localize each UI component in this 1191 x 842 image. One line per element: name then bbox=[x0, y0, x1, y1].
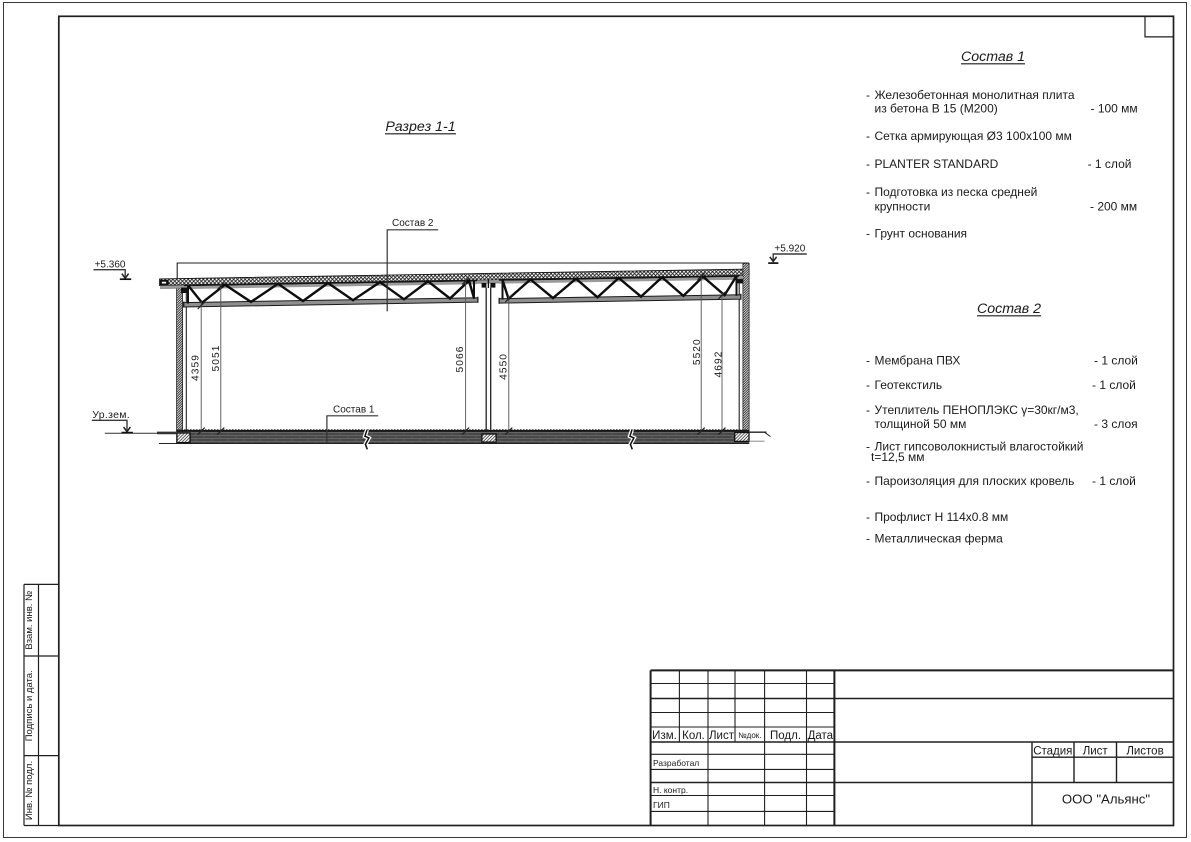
svg-text:-: - bbox=[866, 378, 870, 392]
svg-text:Н. контр.: Н. контр. bbox=[653, 785, 688, 795]
svg-text:- 1 слой: - 1 слой bbox=[1092, 474, 1136, 488]
svg-text:- 100 мм: - 100 мм bbox=[1091, 101, 1138, 115]
svg-text:Разрез 1-1: Разрез 1-1 bbox=[385, 119, 455, 135]
svg-text:Утеплитель ПЕНОПЛЭКС γ=30кг/м3: Утеплитель ПЕНОПЛЭКС γ=30кг/м3, bbox=[875, 403, 1079, 417]
svg-text:Состав 1: Состав 1 bbox=[961, 49, 1025, 65]
svg-text:Взам. инв. №: Взам. инв. № bbox=[24, 591, 35, 650]
svg-text:-: - bbox=[866, 474, 870, 488]
svg-text:Пароизоляция для плоских крове: Пароизоляция для плоских кровель bbox=[875, 474, 1075, 488]
svg-text:Лист: Лист bbox=[1083, 746, 1109, 758]
svg-text:Состав 1: Состав 1 bbox=[333, 404, 375, 415]
svg-text:Состав 2: Состав 2 bbox=[392, 218, 434, 229]
svg-text:Сетка армирующая Ø3 100х100 мм: Сетка армирующая Ø3 100х100 мм bbox=[875, 129, 1072, 143]
svg-text:Подл.: Подл. bbox=[770, 730, 801, 742]
svg-text:-: - bbox=[866, 403, 870, 417]
svg-text:из бетона В 15 (М200): из бетона В 15 (М200) bbox=[875, 101, 998, 115]
svg-text:Железобетонная монолитная пли: Железобетонная монолитная плита bbox=[875, 88, 1075, 102]
svg-text:-: - bbox=[866, 439, 870, 453]
svg-text:Инв. № подл.: Инв. № подл. bbox=[24, 761, 35, 820]
svg-text:Лист: Лист bbox=[709, 730, 735, 742]
svg-text:-: - bbox=[866, 227, 870, 241]
svg-text:-: - bbox=[866, 531, 870, 545]
svg-text:+5.920: +5.920 bbox=[774, 244, 805, 255]
svg-text:5051: 5051 bbox=[211, 345, 222, 372]
svg-text:5520: 5520 bbox=[692, 338, 703, 365]
svg-text:- 3 слоя: - 3 слоя bbox=[1094, 417, 1138, 431]
svg-text:толщиной 50 мм: толщиной 50 мм bbox=[875, 417, 967, 431]
svg-text:4359: 4359 bbox=[191, 354, 202, 381]
svg-text:4550: 4550 bbox=[499, 353, 510, 380]
svg-text:Подготовка из песка средней: Подготовка из песка средней bbox=[875, 185, 1038, 199]
svg-text:5066: 5066 bbox=[455, 346, 466, 373]
svg-text:Состав 2: Состав 2 bbox=[977, 301, 1041, 317]
svg-text:t=12,5 мм: t=12,5 мм bbox=[871, 450, 925, 464]
svg-text:Изм.: Изм. bbox=[652, 730, 677, 742]
svg-text:Профлист Н 114х0.8 мм: Профлист Н 114х0.8 мм bbox=[875, 510, 1009, 524]
svg-text:Подпись и дата.: Подпись и дата. bbox=[24, 670, 35, 741]
svg-text:Ур.зем.: Ур.зем. bbox=[92, 409, 130, 421]
svg-text:- 200 мм: - 200 мм bbox=[1090, 200, 1137, 214]
svg-text:Кол.: Кол. bbox=[682, 730, 705, 742]
svg-text:Дата: Дата bbox=[808, 730, 834, 742]
svg-text:- 1 слой: - 1 слой bbox=[1094, 353, 1138, 367]
svg-text:Мембрана ПВХ: Мембрана ПВХ bbox=[875, 353, 961, 367]
svg-text:-: - bbox=[866, 129, 870, 143]
svg-text:Листов: Листов bbox=[1126, 746, 1163, 758]
svg-text:- 1 слой: - 1 слой bbox=[1088, 157, 1132, 171]
svg-text:ООО "Альянс": ООО "Альянс" bbox=[1062, 792, 1150, 807]
svg-text:PLANTER STANDARD: PLANTER STANDARD bbox=[875, 157, 999, 171]
svg-text:4692: 4692 bbox=[713, 351, 724, 378]
svg-text:-: - bbox=[866, 510, 870, 524]
svg-text:Грунт основания: Грунт основания bbox=[875, 227, 968, 241]
svg-text:Стадия: Стадия bbox=[1033, 746, 1072, 758]
svg-text:-: - bbox=[866, 157, 870, 171]
svg-text:+5.360: +5.360 bbox=[95, 259, 126, 270]
svg-text:Геотекстиль: Геотекстиль bbox=[875, 378, 943, 392]
svg-text:ГИП: ГИП bbox=[653, 800, 670, 810]
svg-text:- 1 слой: - 1 слой bbox=[1092, 378, 1136, 392]
svg-text:Разработал: Разработал bbox=[653, 758, 699, 768]
svg-text:№док.: №док. bbox=[738, 731, 761, 740]
svg-text:-: - bbox=[866, 88, 870, 102]
svg-text:-: - bbox=[866, 353, 870, 367]
svg-text:-: - bbox=[866, 185, 870, 199]
svg-text:крупности: крупности bbox=[875, 200, 931, 214]
svg-text:Металлическая ферма: Металлическая ферма bbox=[875, 531, 1004, 545]
